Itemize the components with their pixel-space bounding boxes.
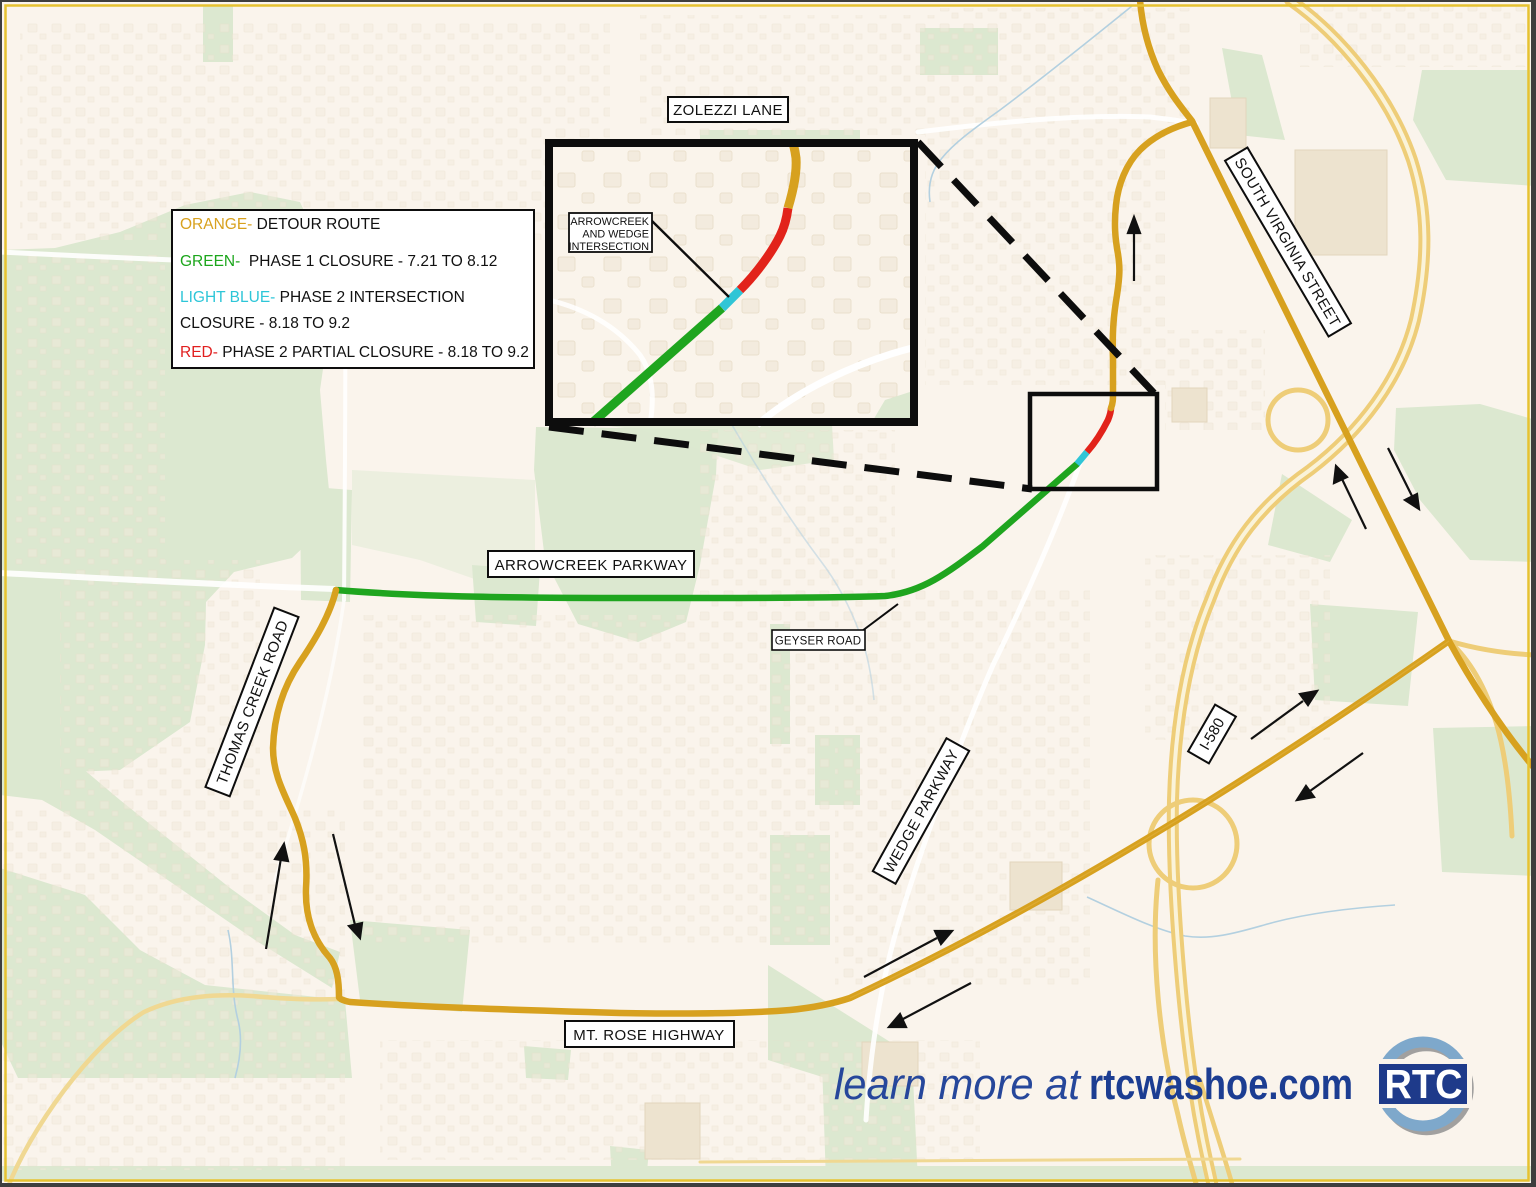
svg-text:RED- PHASE 2 PARTIAL CLOSURE -: RED- PHASE 2 PARTIAL CLOSURE - 8.18 TO 9… [180, 344, 529, 361]
svg-text:CLOSURE - 8.18 TO 9.2: CLOSURE - 8.18 TO 9.2 [180, 315, 350, 332]
svg-text:ARROWCREEK PARKWAY: ARROWCREEK PARKWAY [495, 557, 688, 574]
svg-text:ARROWCREEK: ARROWCREEK [570, 216, 649, 228]
svg-text:MT. ROSE HIGHWAY: MT. ROSE HIGHWAY [573, 1027, 724, 1044]
svg-text:learn more at: learn more at [834, 1060, 1082, 1109]
svg-text:rtcwashoe.com: rtcwashoe.com [1089, 1060, 1353, 1109]
svg-text:RTC: RTC [1385, 1061, 1463, 1107]
svg-text:GEYSER ROAD: GEYSER ROAD [775, 636, 862, 648]
svg-text:LIGHT BLUE- PHASE 2 INTERSECTI: LIGHT BLUE- PHASE 2 INTERSECTION [180, 289, 465, 306]
svg-text:ORANGE- DETOUR ROUTE: ORANGE- DETOUR ROUTE [180, 216, 380, 233]
svg-text:AND WEDGE: AND WEDGE [582, 229, 649, 241]
svg-text:ZOLEZZI LANE: ZOLEZZI LANE [673, 102, 783, 119]
svg-text:INTERSECTION: INTERSECTION [569, 241, 649, 253]
svg-text:GREEN- PHASE 1 CLOSURE - 7.21: GREEN- PHASE 1 CLOSURE - 7.21 TO 8.12 [180, 253, 497, 270]
